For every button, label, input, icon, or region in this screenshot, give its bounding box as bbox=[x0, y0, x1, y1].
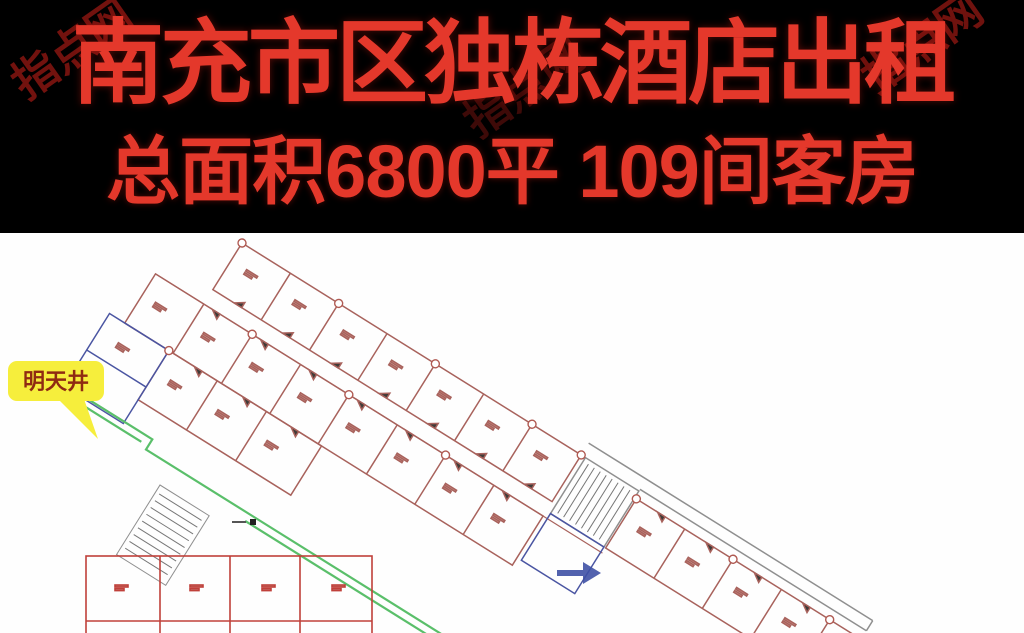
stairs-hatch-mid bbox=[550, 458, 638, 547]
room-row-lower bbox=[138, 351, 321, 496]
wing-corridor-outline bbox=[582, 443, 872, 631]
corridor-green-line bbox=[59, 387, 528, 633]
hotel-floor-plan: 明天井 bbox=[0, 233, 1024, 633]
callout-label: 明天井 bbox=[23, 369, 89, 394]
listing-title: 南充市区独栋酒店出租 bbox=[0, 14, 1024, 115]
ad-banner: 指点网 指点网 指点网 南充市区独栋酒店出租 总面积6800平 109间客房 bbox=[0, 0, 1024, 233]
survey-marker bbox=[232, 519, 256, 525]
direction-arrow-icon bbox=[557, 562, 601, 584]
skylight-callout: 明天井 bbox=[8, 361, 104, 439]
column-symbols bbox=[163, 235, 839, 633]
room-labels bbox=[113, 233, 849, 633]
annex-room-block bbox=[86, 556, 372, 633]
room-row-top bbox=[213, 243, 581, 502]
listing-subtitle: 总面积6800平 109间客房 bbox=[0, 131, 1024, 212]
guest-room-wing bbox=[54, 233, 940, 633]
stairs-hatch-left bbox=[117, 485, 210, 585]
floor-plan-area: 明天井 bbox=[0, 233, 1024, 633]
callout-tail bbox=[58, 399, 98, 439]
